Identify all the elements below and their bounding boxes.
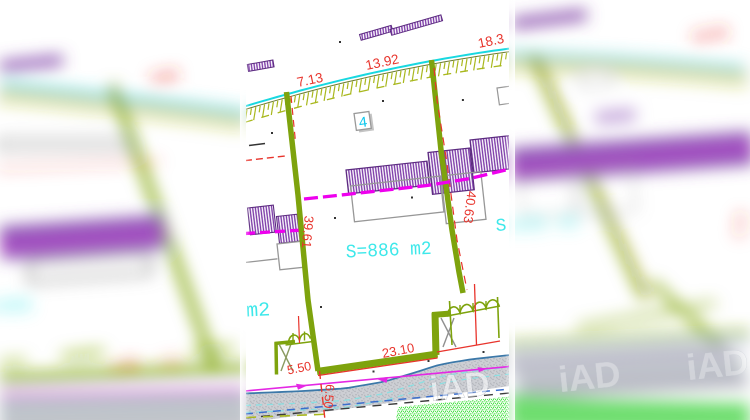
svg-text:iAD: iAD bbox=[685, 341, 750, 388]
svg-text:iAD: iAD bbox=[428, 364, 492, 409]
svg-text:S=950: S=950 bbox=[0, 296, 32, 319]
svg-text:S=886 m2: S=886 m2 bbox=[345, 238, 432, 264]
svg-text:6.50: 6.50 bbox=[321, 384, 337, 410]
svg-text:39.61: 39.61 bbox=[299, 215, 317, 249]
svg-text:iAD: iAD bbox=[557, 353, 623, 400]
svg-text:40.2: 40.2 bbox=[732, 212, 749, 239]
